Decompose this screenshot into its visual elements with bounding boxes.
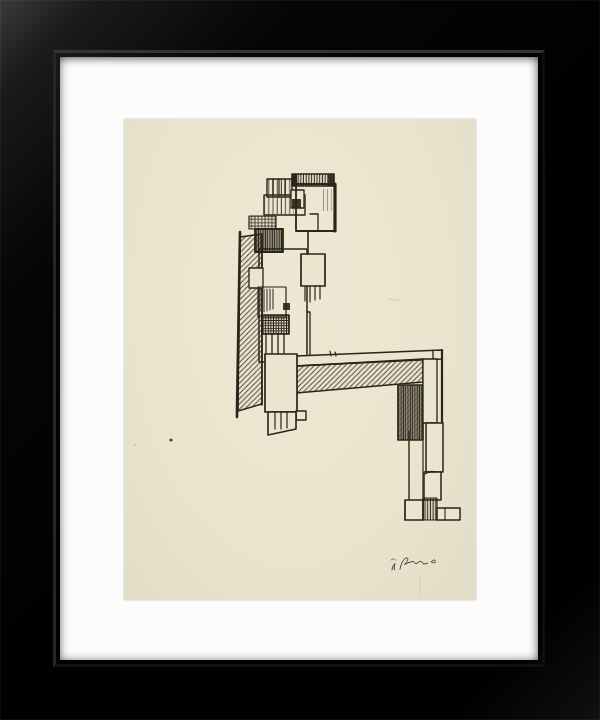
framed-artwork <box>0 0 600 720</box>
figure-head <box>249 174 335 254</box>
artist-signature <box>391 558 436 570</box>
figure-drawing <box>124 119 476 600</box>
paper-specks <box>134 299 420 597</box>
drawing-paper <box>124 119 476 600</box>
figure-foot <box>405 498 460 520</box>
mat-board <box>60 57 538 660</box>
